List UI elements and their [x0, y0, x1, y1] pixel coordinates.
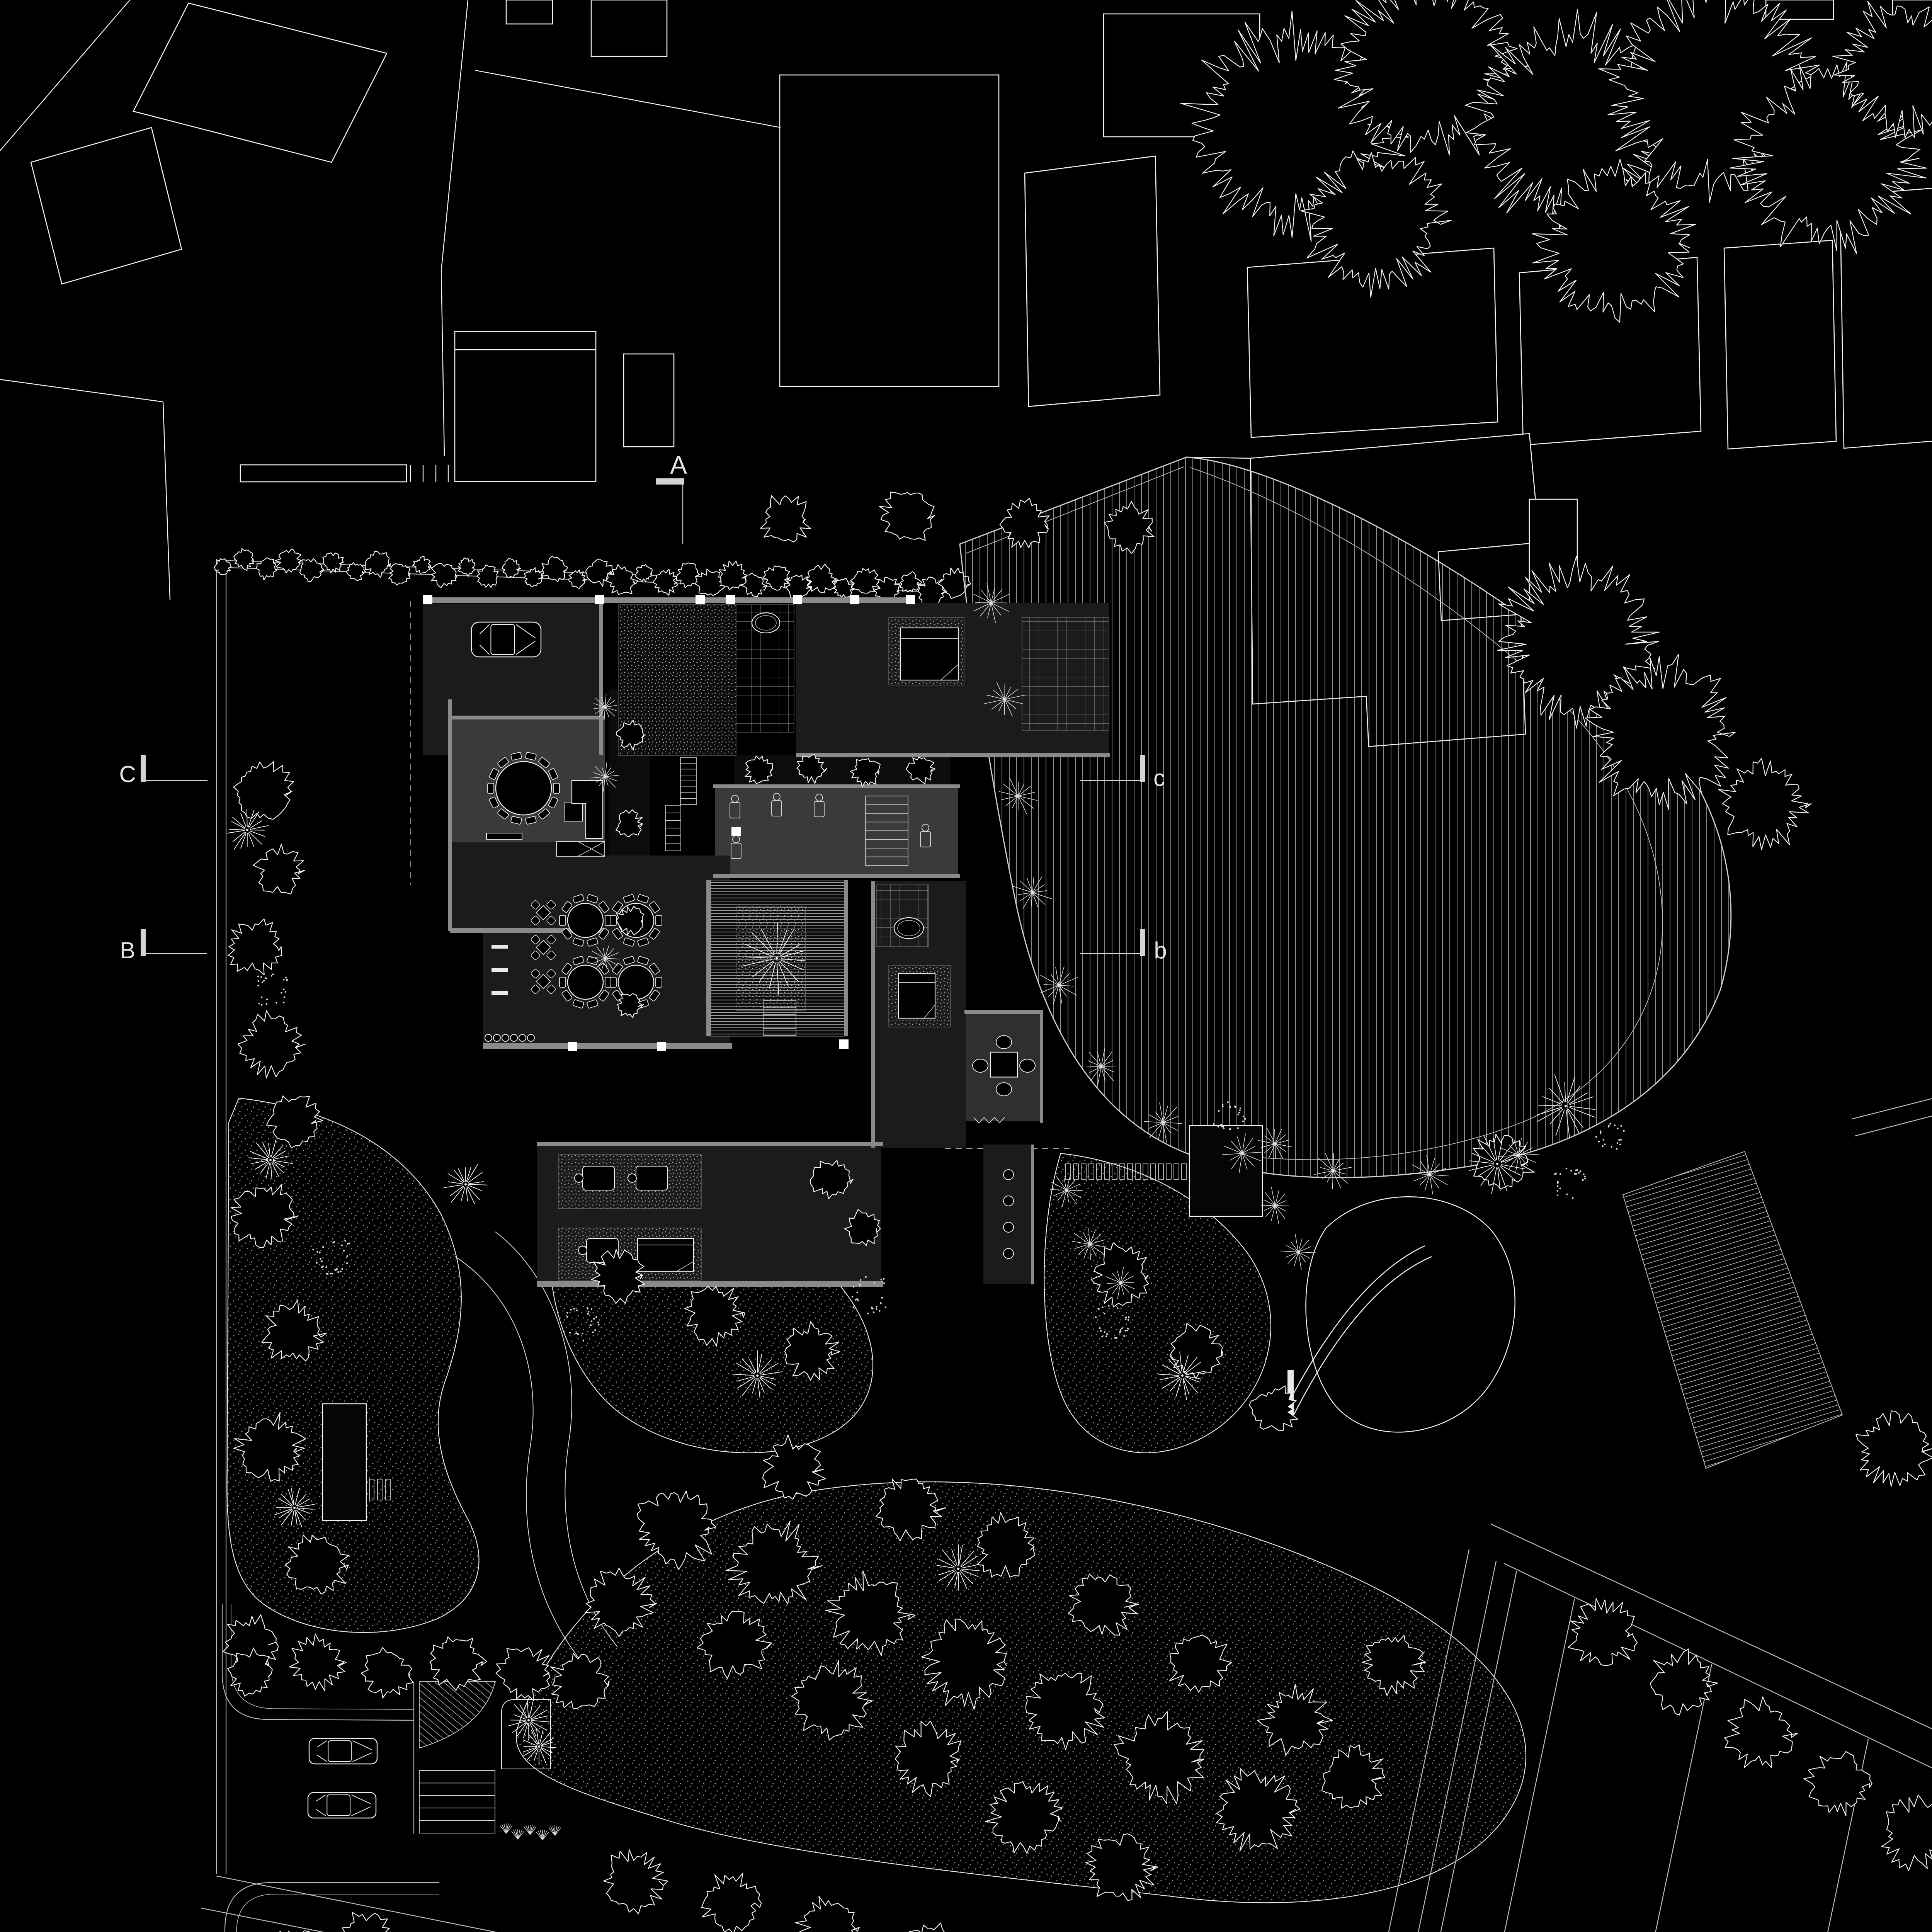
- section-marker-c-left-label: C: [119, 761, 136, 787]
- section-marker-b-left-label: B: [120, 937, 135, 963]
- section-marker-b-mid-label: b: [1154, 937, 1167, 963]
- layer-lawn: [960, 457, 1731, 1178]
- section-marker-c-mid-label: c: [1153, 765, 1165, 791]
- site-plan-stage: A C B c b: [0, 0, 1932, 1932]
- layer-neighbor-parcels-northwest: [0, 0, 999, 600]
- site-plan-drawing: A C B c b: [0, 0, 1932, 1932]
- section-marker-a-label: A: [670, 451, 687, 479]
